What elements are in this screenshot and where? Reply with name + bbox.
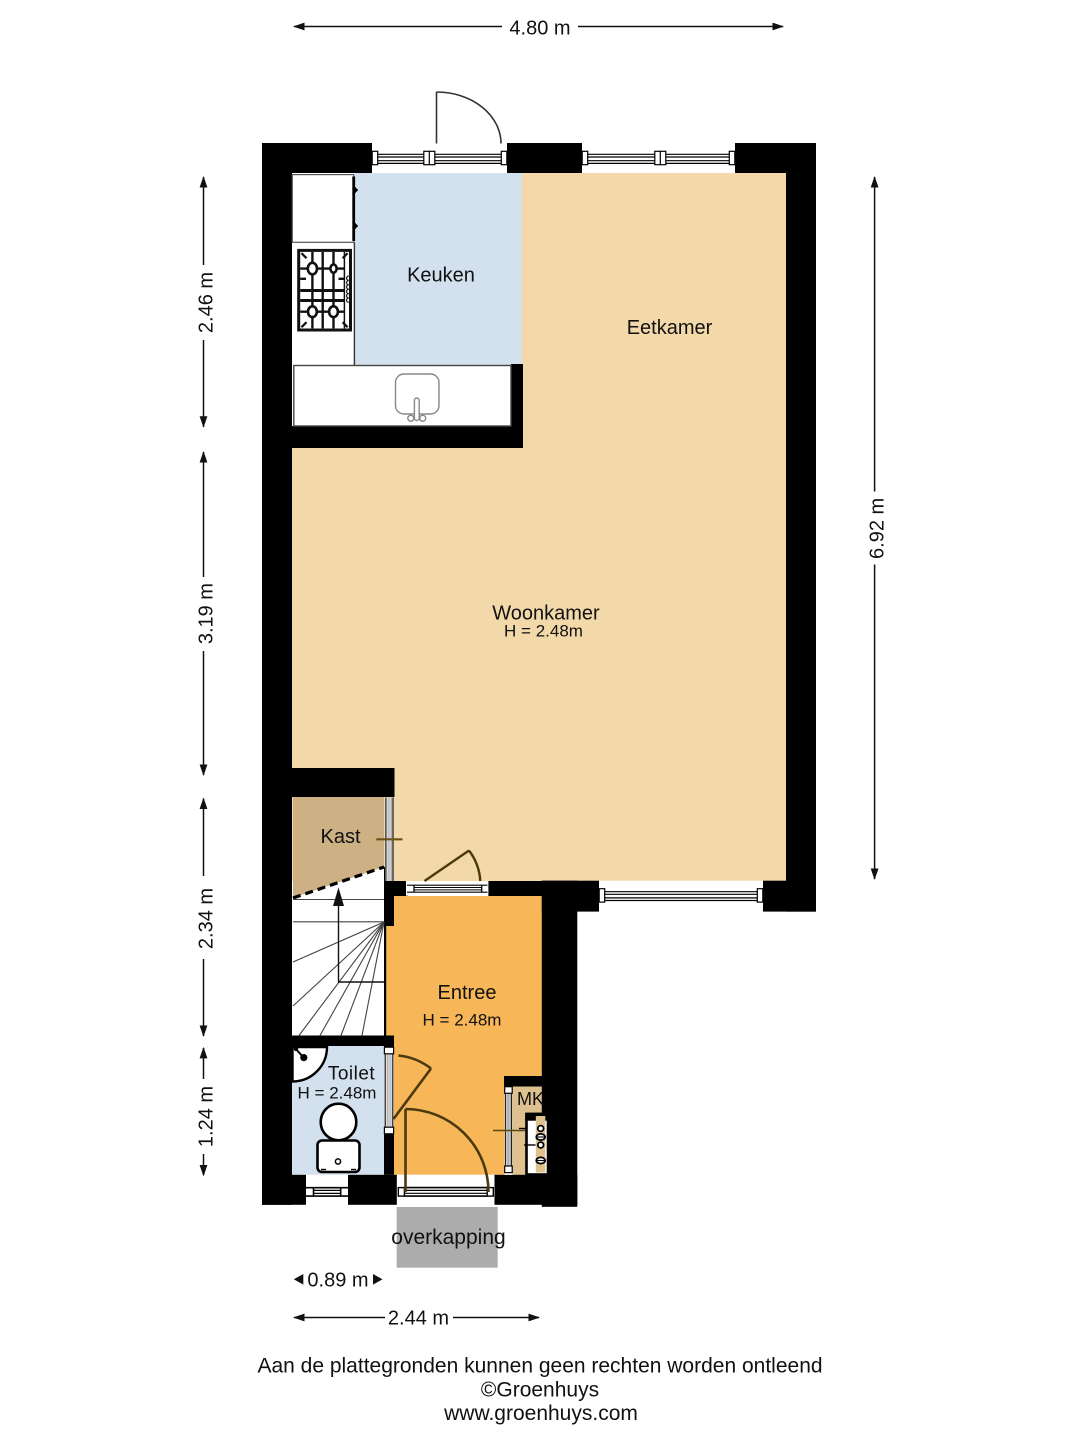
svg-text:Aan de plattegronden kunnen ge: Aan de plattegronden kunnen geen rechten… — [257, 1355, 822, 1378]
svg-text:1.24 m: 1.24 m — [196, 1086, 218, 1147]
svg-text:4.80 m: 4.80 m — [509, 18, 570, 40]
svg-text:©Groenhuys: ©Groenhuys — [481, 1379, 599, 1402]
svg-text:Toilet: Toilet — [328, 1064, 376, 1085]
svg-text:Entree: Entree — [438, 982, 497, 1004]
svg-text:www.groenhuys.com: www.groenhuys.com — [443, 1402, 638, 1425]
svg-text:3.19 m: 3.19 m — [196, 583, 218, 644]
svg-text:2.44 m: 2.44 m — [388, 1308, 449, 1330]
svg-text:Keuken: Keuken — [407, 265, 475, 287]
svg-text:2.34 m: 2.34 m — [196, 888, 218, 949]
svg-text:Kast: Kast — [320, 826, 360, 848]
svg-text:H = 2.48m: H = 2.48m — [504, 622, 583, 641]
svg-text:2.46 m: 2.46 m — [196, 272, 218, 333]
svg-text:H = 2.48m: H = 2.48m — [298, 1084, 377, 1103]
svg-text:overkapping: overkapping — [391, 1226, 505, 1249]
svg-text:MK: MK — [517, 1089, 544, 1109]
svg-text:Eetkamer: Eetkamer — [627, 317, 713, 339]
svg-text:H = 2.48m: H = 2.48m — [423, 1011, 502, 1030]
svg-text:0.89 m: 0.89 m — [307, 1270, 368, 1292]
svg-text:6.92 m: 6.92 m — [867, 498, 889, 559]
